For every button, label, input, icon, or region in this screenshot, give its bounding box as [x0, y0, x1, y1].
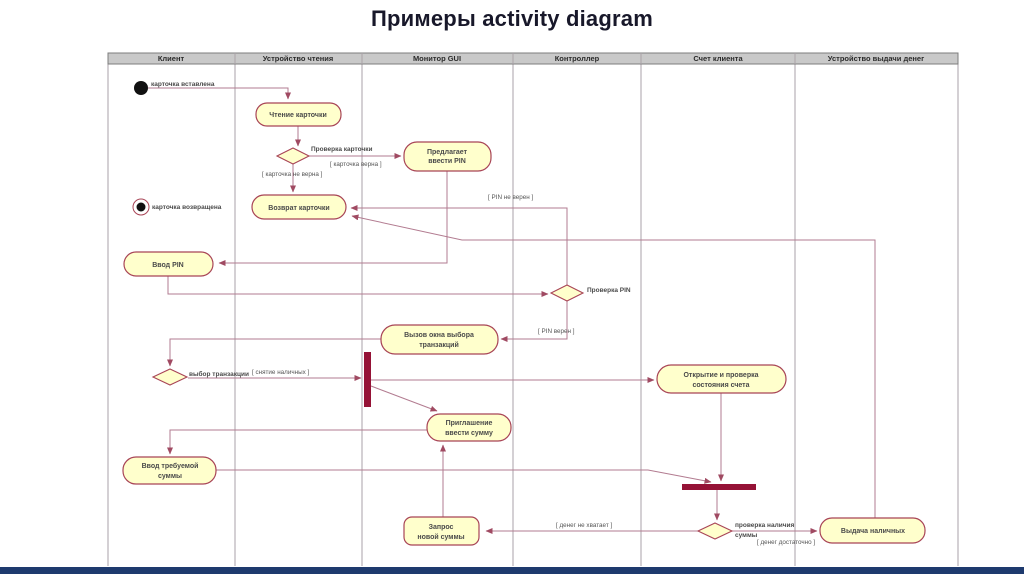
edge-start-to-read-card	[148, 88, 288, 99]
edge-fork-to-invite	[371, 386, 437, 411]
decision-check-availability-label-2: суммы	[735, 532, 758, 539]
guard-card-invalid: [ карточка не верна ]	[262, 171, 323, 178]
guard-card-valid: [ карточка верна ]	[330, 161, 382, 168]
activity-invite-amount-label-2: ввести сумму	[445, 430, 493, 437]
activity-open-check-account-label-1: Открытие и проверка	[683, 372, 758, 379]
decision-check-pin	[551, 285, 583, 301]
fork-bar	[364, 352, 371, 407]
edges	[148, 88, 875, 531]
slide: Примеры activity diagram Клиент Устройс	[0, 0, 1024, 574]
slide-footer-bar	[0, 567, 1024, 574]
activity-read-card-label: Чтение карточки	[269, 112, 327, 119]
swimlane-header-client: Клиент	[158, 54, 185, 63]
edge-call-window-to-choose	[170, 339, 381, 366]
guard-not-enough-money: [ денег не хватает ]	[556, 522, 612, 529]
activity-open-check-account-label-2: состояния счета	[692, 382, 749, 389]
decision-check-card	[277, 148, 309, 164]
guard-withdraw-cash: [ снятие наличных ]	[252, 369, 310, 376]
edge-enter-amount-to-join	[216, 470, 711, 482]
swimlane-header-account: Счет клиента	[693, 54, 743, 63]
edge-dispense-to-return-card	[352, 216, 875, 518]
edge-invite-to-enter-amount	[170, 430, 427, 454]
final-node	[133, 199, 149, 215]
guard-enough-money: [ денег достаточно ]	[757, 539, 815, 546]
decision-choose-transaction	[153, 369, 187, 385]
final-node-label: карточка возвращена	[152, 204, 222, 211]
join-bar	[682, 484, 756, 490]
swimlane-header-controller: Контроллер	[555, 54, 600, 63]
guard-pin-invalid: [ PIN не верен ]	[488, 194, 533, 201]
swimlane-grid	[108, 53, 958, 566]
activity-call-window	[381, 325, 498, 354]
guard-pin-valid: [ PIN верен ]	[538, 328, 575, 335]
activity-offer-pin	[404, 142, 491, 171]
activity-call-window-label-1: Вызов окна выбора	[404, 331, 474, 339]
activity-return-card-label: Возврат карточки	[268, 205, 329, 212]
activity-diagram: Клиент Устройство чтения Монитор GUI Кон…	[0, 0, 1024, 567]
activity-offer-pin-label-2: ввести PIN	[428, 158, 466, 165]
initial-node	[134, 81, 148, 95]
activity-offer-pin-label-1: Предлагает	[427, 149, 468, 156]
swimlane-header-reader: Устройство чтения	[263, 54, 334, 63]
initial-node-label: карточка вставлена	[151, 81, 215, 88]
activity-enter-amount-label-2: суммы	[158, 473, 182, 480]
swimlane-header-gui: Монитор GUI	[413, 54, 461, 63]
activity-call-window-label-2: транзакций	[419, 341, 459, 349]
activity-request-new-amount-label-1: Запрос	[429, 524, 454, 531]
activity-dispense-cash-label: Выдача наличных	[841, 528, 905, 535]
swimlane-header-dispenser: Устройство выдачи денег	[828, 54, 924, 63]
decision-choose-transaction-label: выбор транзакции	[189, 370, 249, 378]
decision-check-card-label: Проверка карточки	[311, 146, 372, 153]
activity-enter-pin-label: Ввод PIN	[152, 262, 184, 269]
activity-invite-amount-label-1: Приглашение	[446, 420, 493, 427]
decision-check-availability-label-1: проверка наличия	[735, 522, 794, 529]
decision-check-availability	[698, 523, 732, 539]
decision-check-pin-label: Проверка PIN	[587, 287, 631, 294]
activity-request-new-amount-label-2: новой суммы	[417, 533, 464, 541]
activity-enter-amount-label-1: Ввод требуемой	[142, 462, 199, 470]
edge-pin-invalid	[351, 208, 567, 285]
edge-enter-pin-to-check-pin	[168, 276, 548, 294]
